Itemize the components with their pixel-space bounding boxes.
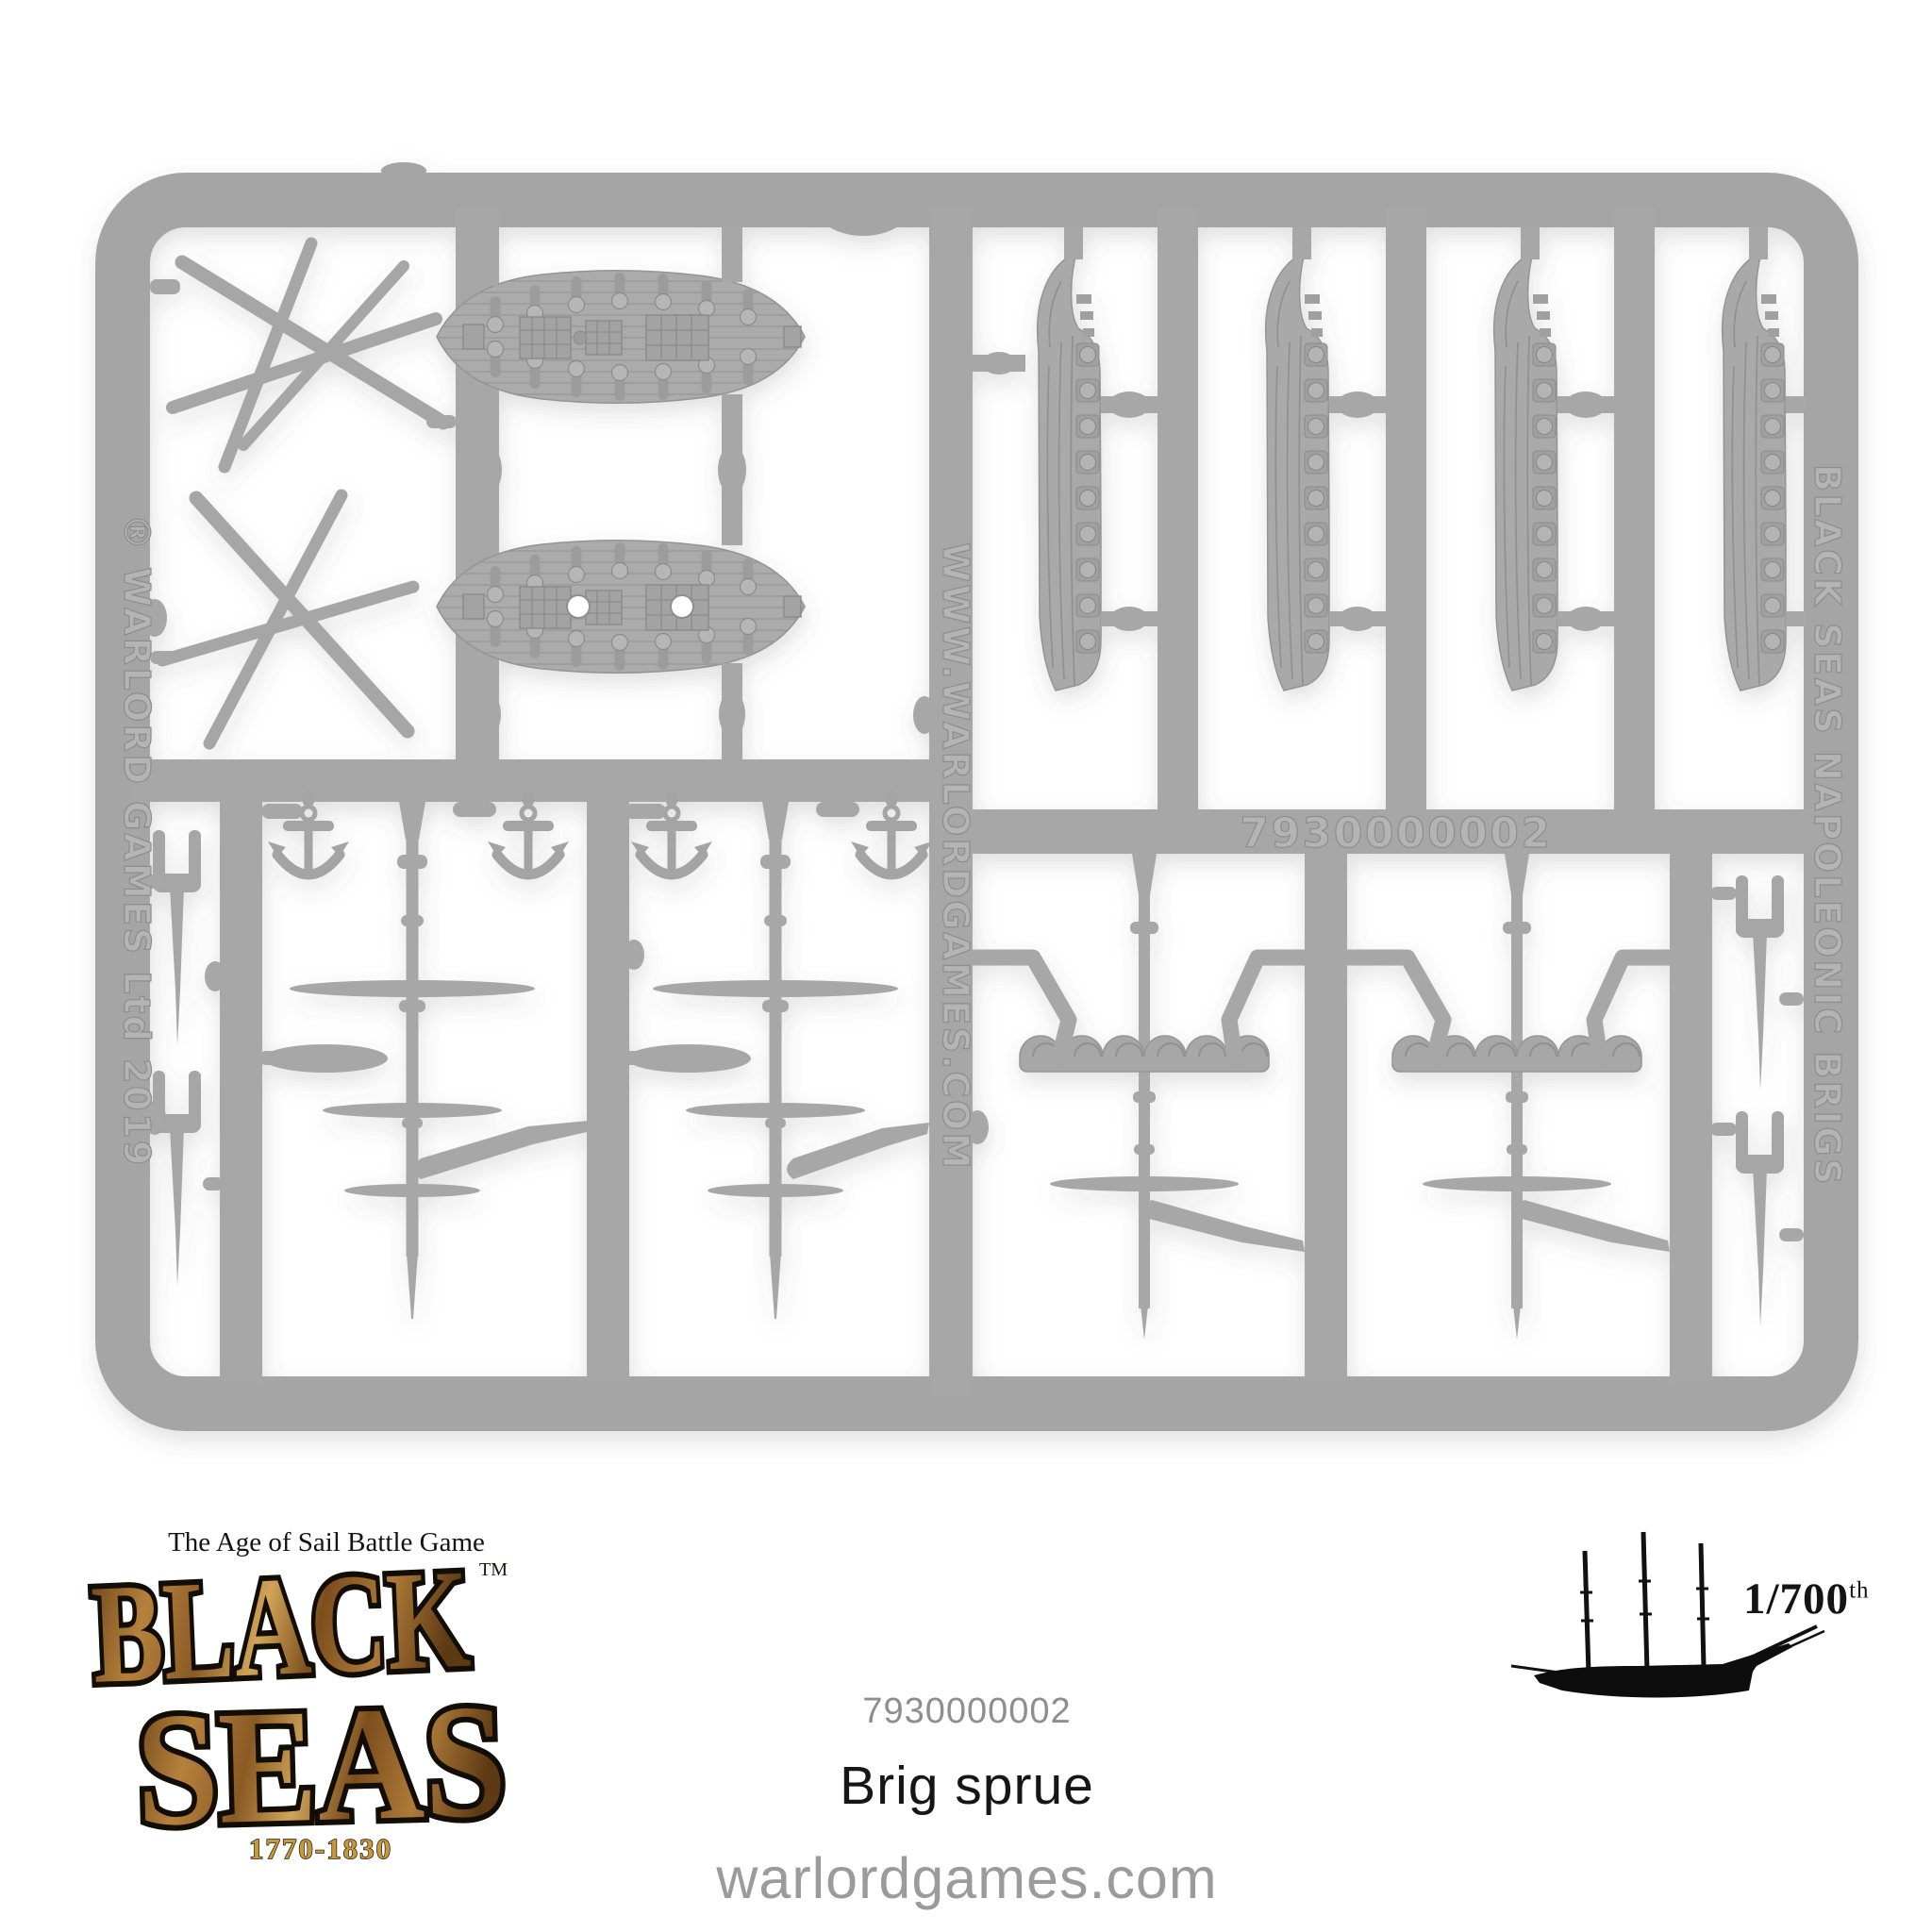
- part-deck-top-1: [437, 271, 805, 404]
- part-furled-sail-assembly-2: [1392, 854, 1641, 1340]
- mold-text-part-number: 7930000002: [1240, 809, 1552, 858]
- product-info: 7930000002 Brig sprue warlordgames.com: [637, 1691, 1297, 1911]
- part-bowsprit-3: [1144, 1200, 1305, 1252]
- mold-text-left: ® WARLORD GAMES Ltd 2019: [116, 514, 158, 1168]
- part-davit-fork-3: [1736, 875, 1784, 1091]
- sprue-frame-nub: [381, 162, 426, 179]
- scale-label: 1/700th: [1743, 1574, 1870, 1624]
- part-spar-cluster-2: [162, 495, 413, 743]
- part-davit-fork-4: [1736, 1111, 1784, 1326]
- runner-hull-2: [1386, 208, 1426, 816]
- runner-hull-3: [1614, 208, 1655, 816]
- sprue-frame-tab: [818, 183, 908, 236]
- logo-trademark: TM: [479, 1559, 508, 1580]
- mold-text-right: BLACK SEAS NAPOLEONIC BRIGS: [1807, 464, 1848, 1187]
- product-sku: 7930000002: [637, 1691, 1297, 1732]
- part-hull-side-2: [1266, 253, 1329, 691]
- part-bowsprit-1: [414, 1121, 589, 1179]
- runner-hull-1: [1158, 208, 1198, 816]
- part-davit-fork-2: [153, 1071, 201, 1286]
- scale-badge: 1/700th: [1506, 1506, 1932, 1770]
- part-hull-side-1: [1038, 253, 1101, 691]
- product-photo-page: ® WARLORD GAMES Ltd 2019 WWW.WARLORDGAME…: [0, 0, 1932, 1932]
- part-mast-assembly-2: [623, 791, 932, 1319]
- deck-mast-hole: [567, 595, 590, 618]
- brig-silhouette-icon: [1506, 1506, 1826, 1751]
- scale-ordinal: th: [1849, 1577, 1869, 1603]
- part-spar-cluster-1: [173, 243, 443, 467]
- product-title: Brig sprue: [637, 1755, 1297, 1817]
- part-bowsprit-4: [1517, 1200, 1670, 1252]
- scale-fraction: 1/700: [1743, 1574, 1849, 1624]
- part-mast-assembly-1: [259, 791, 569, 1319]
- deck-mast-hole: [671, 595, 693, 618]
- runner-vertical-c: [1305, 854, 1347, 1382]
- part-hull-side-4: [1723, 253, 1786, 691]
- part-bowsprit-2: [787, 1123, 929, 1179]
- part-furled-sail-assembly-1: [1020, 854, 1269, 1340]
- runner-horizontal-left: [132, 759, 973, 802]
- logo-years: 1770-1830: [249, 1832, 392, 1865]
- part-davit-fork-1: [153, 830, 201, 1045]
- runner-vertical-b: [587, 759, 629, 1382]
- black-seas-logo: The Age of Sail Battle Game BLACK TM SEA…: [83, 1489, 517, 1894]
- runner-vertical-a: [220, 759, 262, 1382]
- mold-text-center: WWW.WARLORDGAMES.COM: [935, 542, 976, 1171]
- part-deck-top-2: [437, 541, 805, 674]
- product-website: warlordgames.com: [637, 1845, 1297, 1911]
- part-hull-side-3: [1494, 253, 1557, 691]
- runner-vertical-d: [1670, 854, 1712, 1382]
